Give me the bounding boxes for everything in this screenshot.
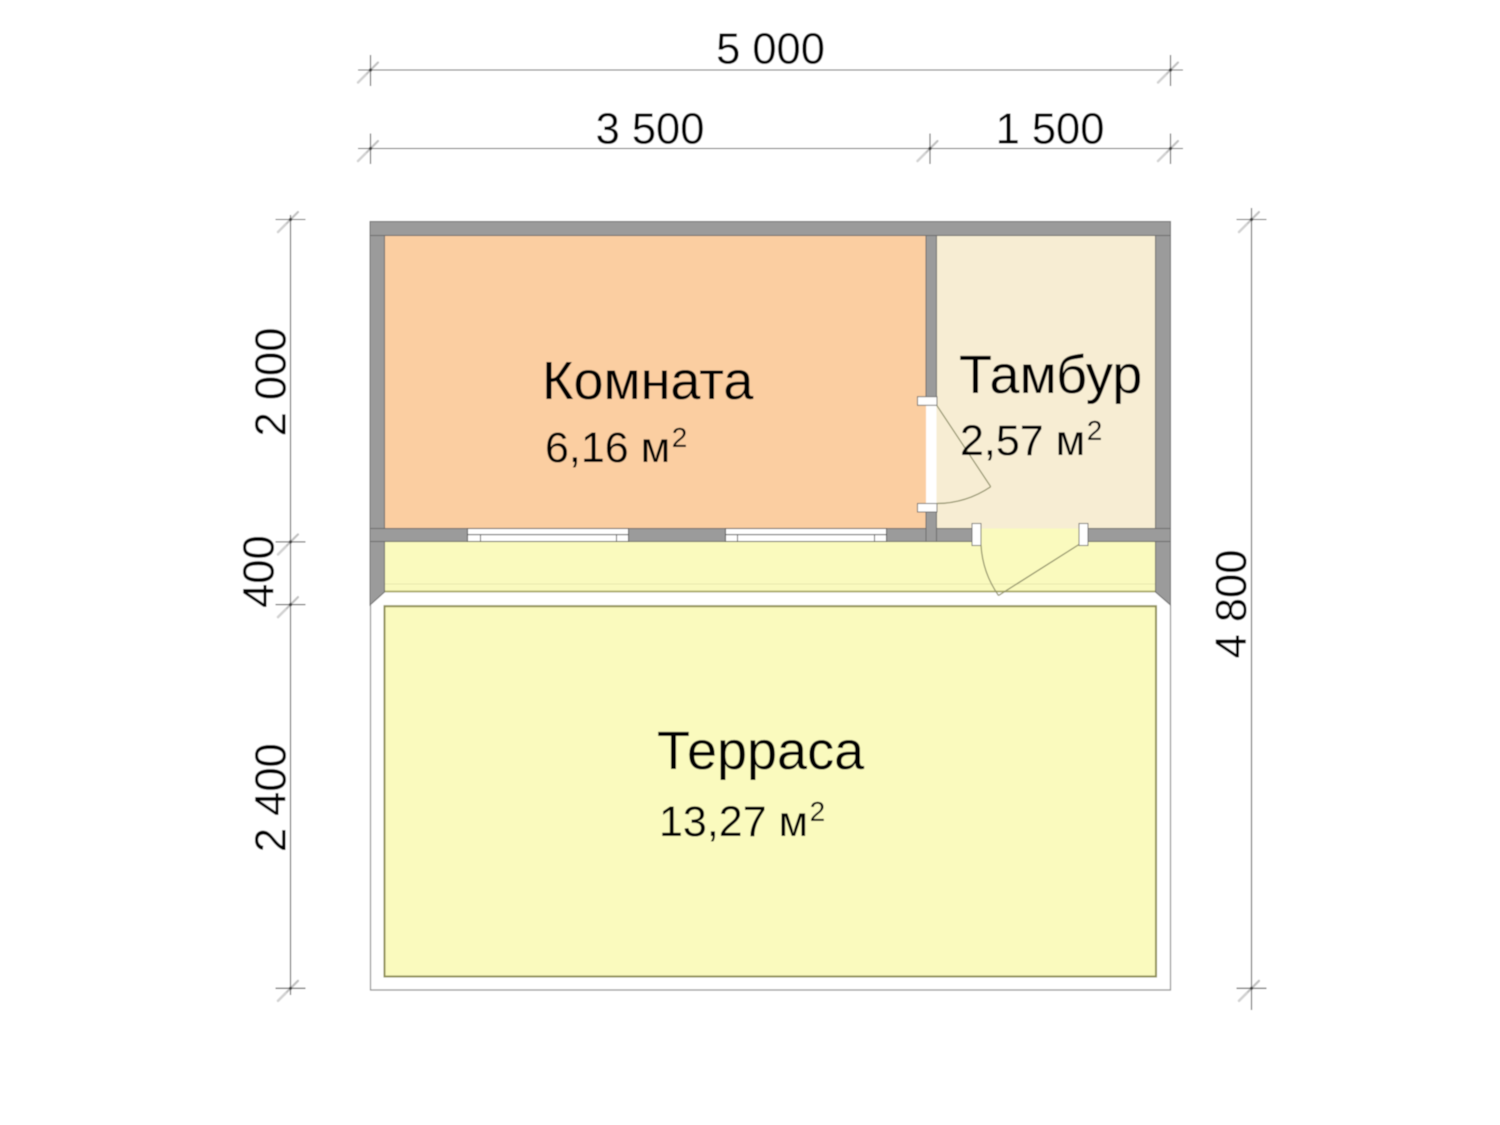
svg-text:2 400: 2 400 [248, 743, 296, 852]
svg-text:13,27 м2: 13,27 м2 [659, 796, 825, 846]
svg-text:Комната: Комната [542, 351, 754, 411]
svg-text:2,57 м2: 2,57 м2 [960, 415, 1102, 465]
svg-text:Терраса: Терраса [657, 721, 865, 781]
svg-text:400: 400 [236, 535, 284, 608]
svg-text:4 800: 4 800 [1208, 550, 1256, 659]
svg-text:Тамбур: Тамбур [959, 345, 1142, 405]
svg-text:5 000: 5 000 [716, 26, 825, 74]
svg-text:2 000: 2 000 [248, 328, 296, 437]
svg-text:3 500: 3 500 [596, 106, 705, 154]
svg-text:1 500: 1 500 [996, 106, 1105, 154]
svg-text:6,16 м2: 6,16 м2 [545, 422, 687, 472]
